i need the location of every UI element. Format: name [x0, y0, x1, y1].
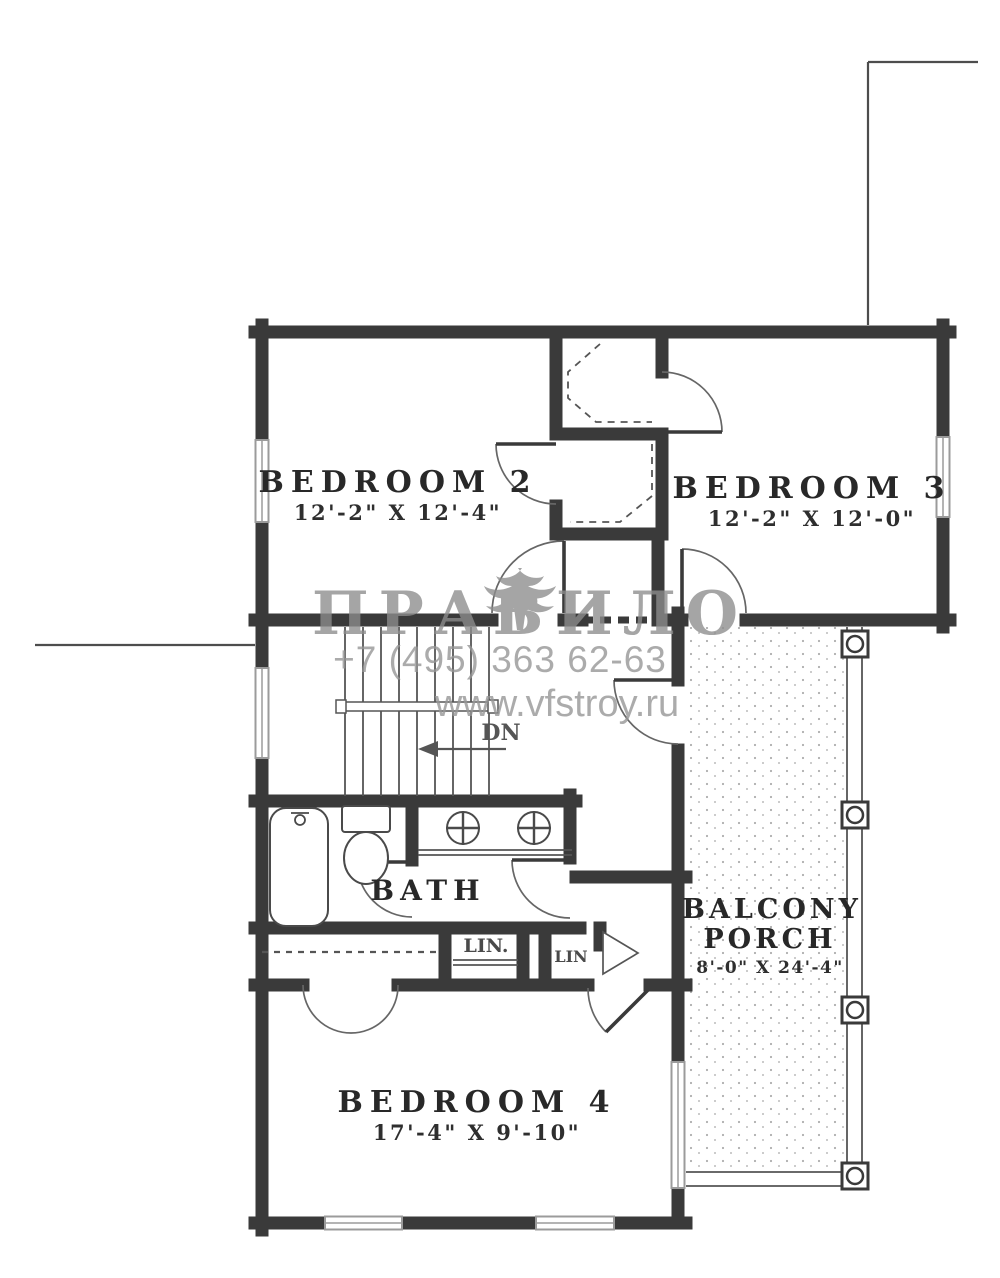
column [842, 1163, 868, 1189]
window-bedroom4-right [672, 1062, 685, 1188]
watermark-phone: +7 (495) 363 62-63 [333, 639, 667, 680]
bedroom2-label: BEDROOM 2 [259, 465, 538, 500]
door-bath [512, 860, 570, 918]
bedroom2-dims: 12'-2" X 12'-4" [294, 500, 502, 525]
bedroom4-dims: 17'-4" X 9'-10" [373, 1120, 581, 1145]
dn-arrow-head [418, 741, 438, 757]
bath-fixtures [270, 806, 572, 926]
watermark: ПРАВ ИЛО [312, 568, 748, 649]
window-landing-left [256, 668, 269, 758]
linen2-label: LIN [554, 947, 587, 966]
balcony-label-line1: BALCONY [682, 894, 862, 925]
column [842, 802, 868, 828]
linen1-label: LIN. [463, 935, 508, 957]
linen1-shelves [453, 960, 518, 965]
window-bedroom4-bottom-right [536, 1217, 614, 1230]
balcony-label-line2: PORCH [703, 924, 836, 955]
bath-label: BATH [370, 874, 485, 907]
window-bedroom4-bottom-left [325, 1217, 402, 1230]
toilet [342, 806, 390, 884]
door-closet1 [662, 372, 722, 432]
bedroom3-dims: 12'-2" X 12'-0" [708, 506, 916, 531]
vanity-double-sinks [418, 811, 572, 855]
watermark-website: www.vfstroy.ru [434, 683, 679, 725]
floor-plan: BEDROOM 2 12'-2" X 12'-4" BEDROOM 3 12'-… [0, 0, 1000, 1278]
column [842, 997, 868, 1023]
handrail-post [336, 700, 346, 713]
bedroom4-label: BEDROOM 4 [338, 1085, 617, 1120]
door-linen2 [603, 932, 638, 974]
balcony-dims: 8'-0" X 24'-4" [696, 958, 843, 978]
door-bedroom4-closet-bifold [303, 985, 398, 1033]
bedroom3-label: BEDROOM 3 [673, 471, 952, 506]
bathtub [270, 808, 328, 926]
column [842, 631, 868, 657]
exterior-roof-lines [35, 62, 978, 645]
floor-plan-svg: BEDROOM 2 12'-2" X 12'-4" BEDROOM 3 12'-… [0, 0, 1000, 1278]
door-bedroom4 [588, 988, 650, 1032]
